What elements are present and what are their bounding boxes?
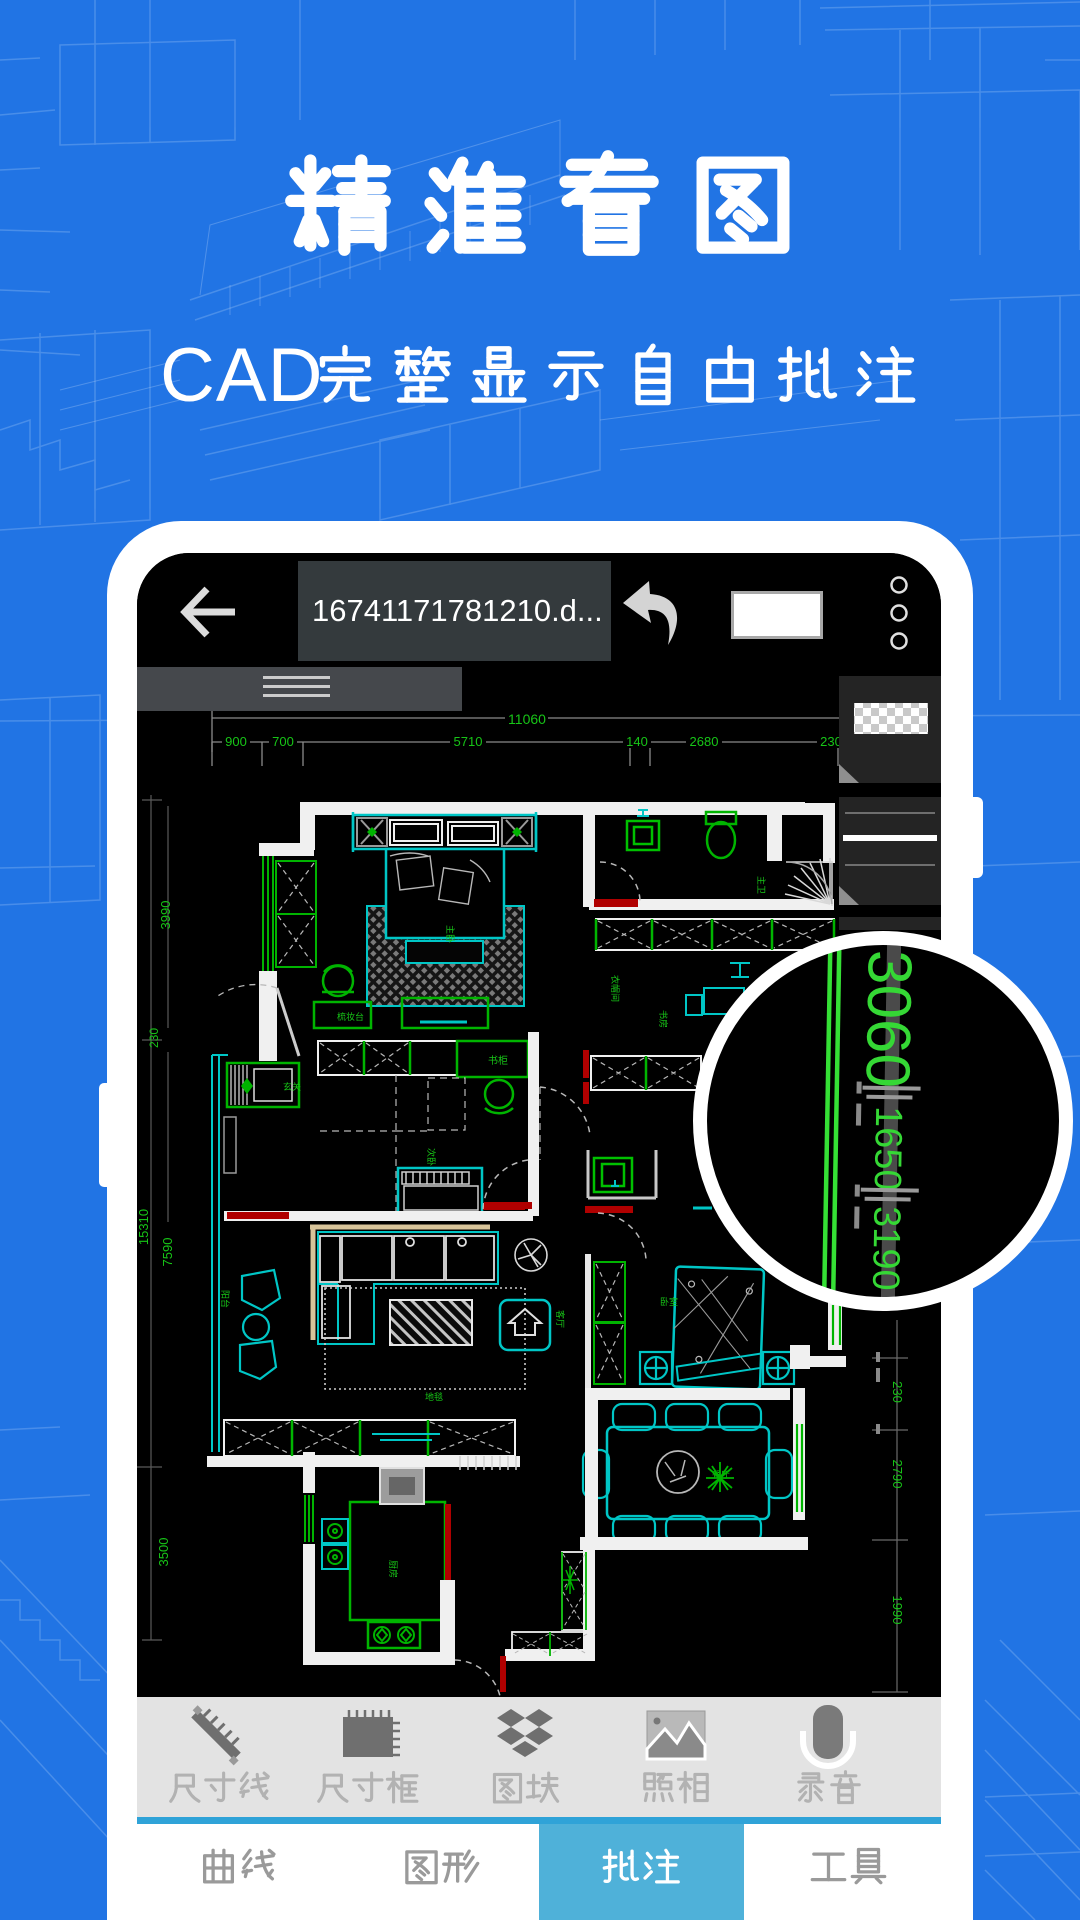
svg-text:书房: 书房	[658, 1010, 669, 1028]
svg-text:玄关: 玄关	[283, 1081, 301, 1092]
svg-text:5710: 5710	[454, 734, 483, 749]
svg-text:140: 140	[626, 734, 648, 749]
svg-text:客厅: 客厅	[555, 1310, 566, 1328]
svg-text:230: 230	[890, 1381, 905, 1403]
svg-text:2680: 2680	[690, 734, 719, 749]
svg-text:地毯: 地毯	[425, 1391, 443, 1402]
svg-text:7590: 7590	[160, 1238, 175, 1267]
svg-text:厨房: 厨房	[388, 1560, 399, 1578]
svg-text:阳台: 阳台	[220, 1290, 231, 1308]
svg-text:书柜: 书柜	[488, 1054, 508, 1067]
svg-text:230: 230	[147, 1028, 161, 1048]
svg-text:3990: 3990	[158, 901, 173, 930]
svg-text:CAD: CAD	[160, 333, 323, 418]
svg-text:700: 700	[272, 734, 294, 749]
svg-text:梳妆台: 梳妆台	[337, 1011, 364, 1022]
svg-text:2790: 2790	[890, 1460, 905, 1489]
svg-text:1990: 1990	[890, 1596, 905, 1625]
svg-text:卧室: 卧室	[660, 1296, 678, 1307]
svg-text:衣帽间: 衣帽间	[610, 975, 621, 1002]
svg-text:3060: 3060	[853, 949, 924, 1088]
svg-text:次卧: 次卧	[426, 1148, 437, 1166]
svg-text:15310: 15310	[137, 1209, 151, 1245]
svg-text:主卧: 主卧	[445, 925, 456, 943]
svg-text:900: 900	[225, 734, 247, 749]
svg-text:3500: 3500	[156, 1538, 171, 1567]
svg-text:3190: 3190	[864, 1206, 907, 1291]
svg-text:11060: 11060	[508, 711, 546, 727]
svg-text:1650: 1650	[866, 1106, 909, 1191]
svg-text:主卫: 主卫	[756, 876, 767, 894]
